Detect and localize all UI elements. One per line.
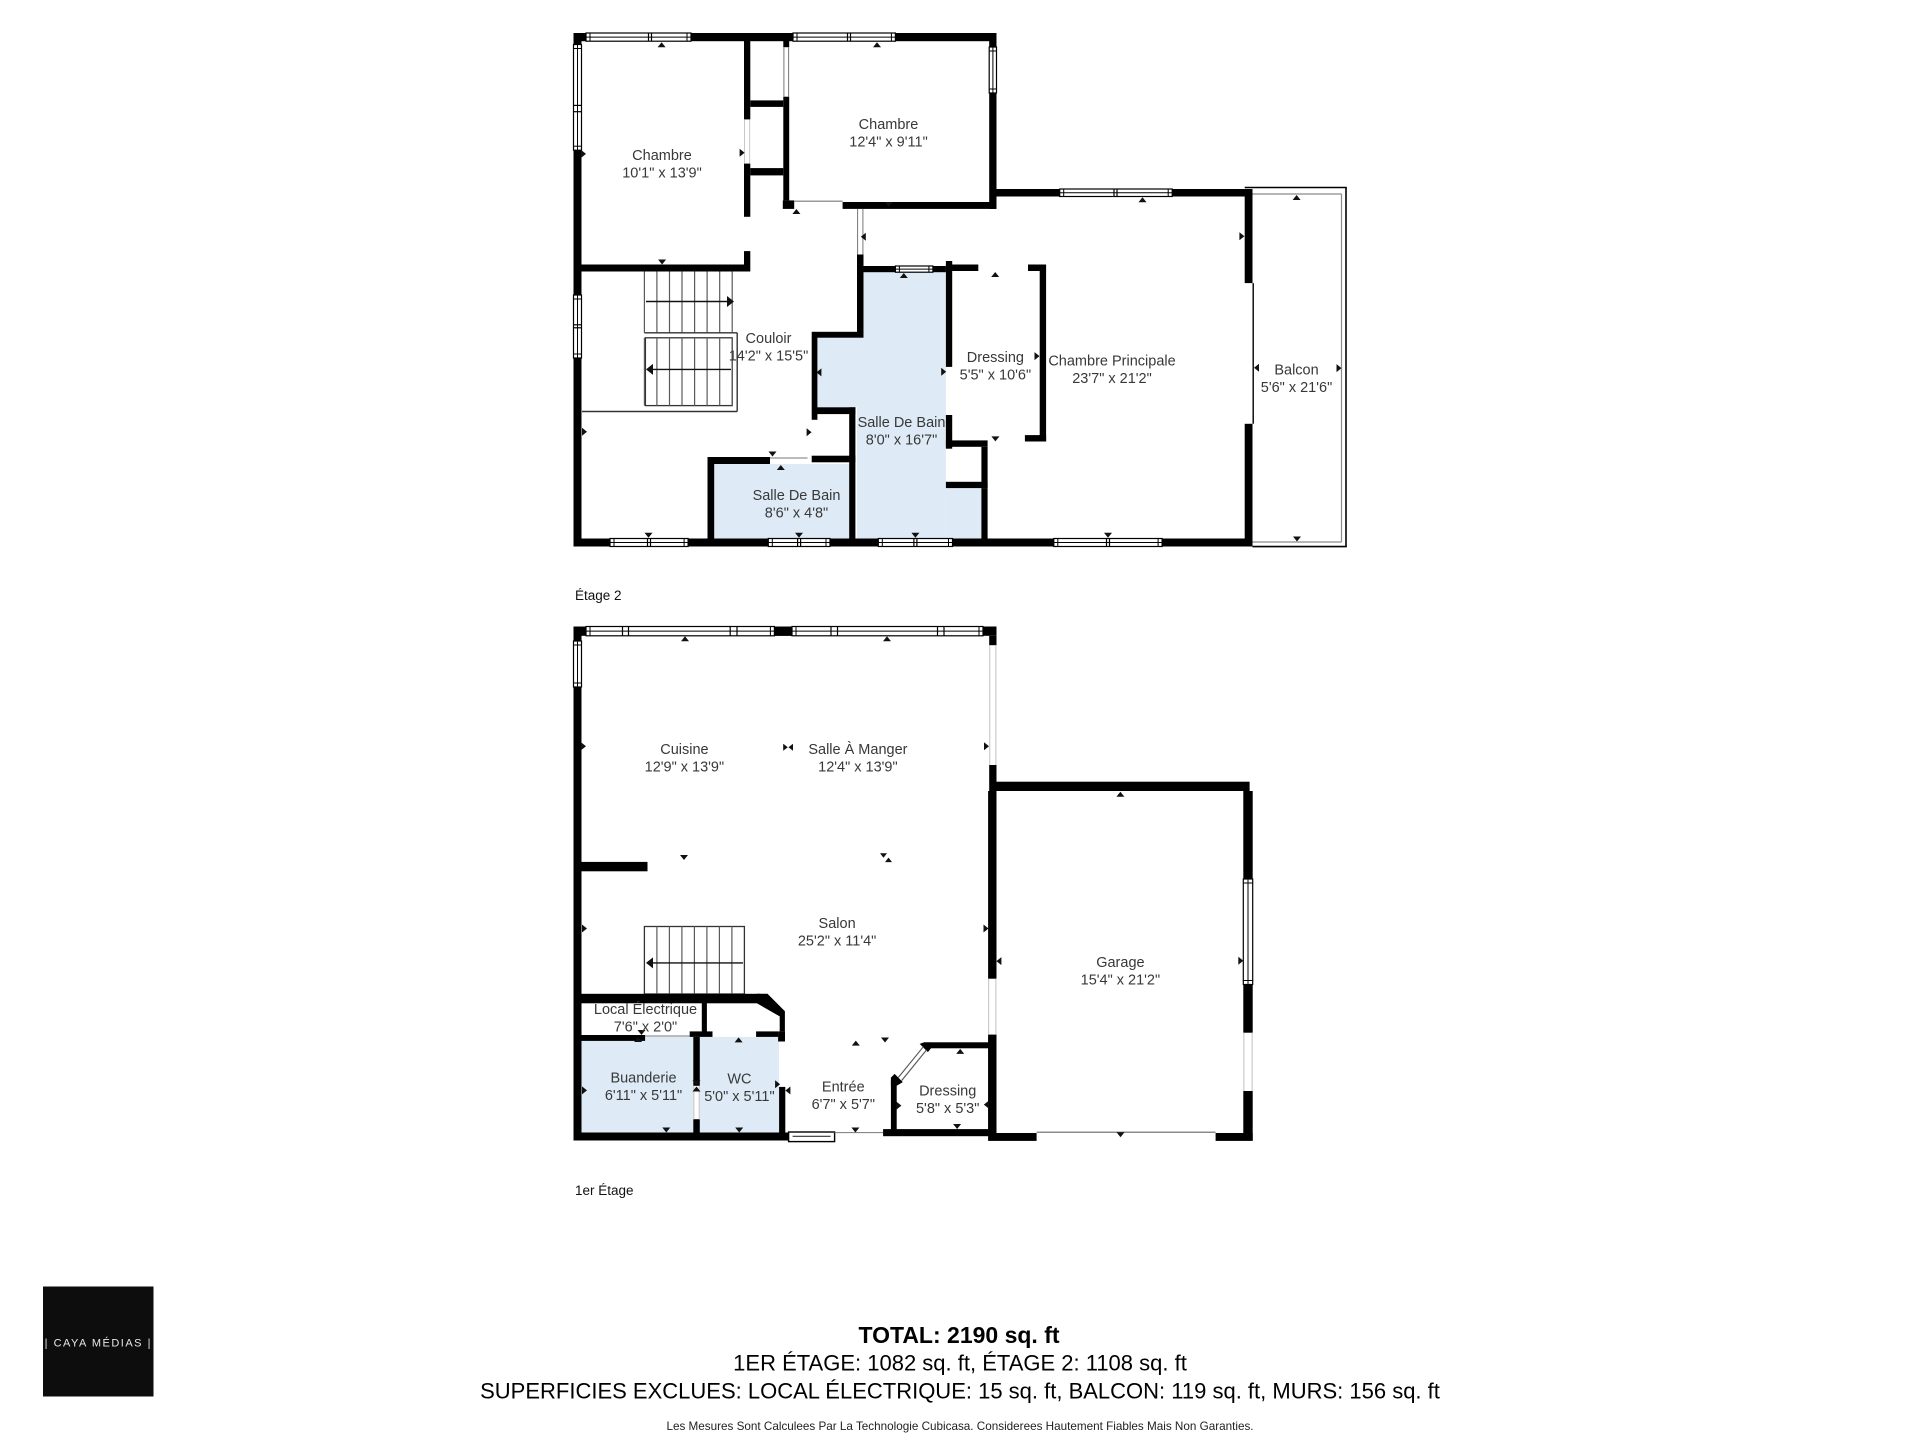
svg-text:5'5" x 10'6": 5'5" x 10'6" — [960, 368, 1031, 384]
svg-text:SUPERFICIES EXCLUES: LOCAL ÉLE: SUPERFICIES EXCLUES: LOCAL ÉLECTRIQUE: 1… — [480, 1379, 1440, 1404]
svg-text:5'0" x 5'11": 5'0" x 5'11" — [704, 1089, 774, 1105]
svg-text:Chambre: Chambre — [859, 117, 919, 133]
svg-text:Salle À Manger: Salle À Manger — [808, 741, 907, 758]
svg-text:| CAYA MÉDIAS |: | CAYA MÉDIAS | — [45, 1337, 152, 1350]
svg-text:Couloir: Couloir — [746, 331, 792, 347]
svg-text:Étage 2: Étage 2 — [575, 588, 622, 603]
svg-text:Salle De Bain: Salle De Bain — [858, 415, 946, 431]
svg-text:5'8" x 5'3": 5'8" x 5'3" — [916, 1101, 979, 1117]
svg-text:8'0" x 16'7": 8'0" x 16'7" — [866, 433, 937, 449]
svg-text:12'4" x 9'11": 12'4" x 9'11" — [849, 135, 927, 151]
svg-text:Salle De Bain: Salle De Bain — [753, 488, 841, 504]
svg-text:Les Mesures Sont Calculees Par: Les Mesures Sont Calculees Par La Techno… — [666, 1420, 1253, 1433]
svg-text:12'4" x 13'9": 12'4" x 13'9" — [818, 760, 898, 776]
svg-text:1er Étage: 1er Étage — [575, 1183, 634, 1198]
svg-text:6'7" x 5'7": 6'7" x 5'7" — [812, 1097, 875, 1113]
svg-text:TOTAL: 2190 sq. ft: TOTAL: 2190 sq. ft — [858, 1322, 1059, 1348]
svg-text:Chambre Principale: Chambre Principale — [1048, 354, 1175, 370]
svg-text:8'6" x 4'8": 8'6" x 4'8" — [765, 506, 828, 522]
svg-text:Buanderie: Buanderie — [610, 1071, 676, 1087]
svg-text:10'1" x 13'9": 10'1" x 13'9" — [622, 166, 702, 182]
svg-text:WC: WC — [727, 1072, 751, 1088]
svg-text:Balcon: Balcon — [1274, 363, 1318, 379]
svg-text:5'6" x 21'6": 5'6" x 21'6" — [1261, 380, 1332, 396]
svg-text:15'4" x 21'2": 15'4" x 21'2" — [1081, 973, 1161, 989]
svg-text:25'2" x 11'4": 25'2" x 11'4" — [798, 934, 876, 950]
svg-text:Garage: Garage — [1096, 955, 1144, 971]
svg-text:Entrée: Entrée — [822, 1080, 865, 1096]
svg-text:12'9" x 13'9": 12'9" x 13'9" — [645, 760, 725, 776]
svg-text:Local Électrique: Local Électrique — [594, 1001, 697, 1018]
svg-text:23'7" x 21'2": 23'7" x 21'2" — [1072, 371, 1152, 387]
svg-text:Dressing: Dressing — [919, 1084, 976, 1100]
svg-text:1ER ÉTAGE: 1082 sq. ft, ÉTAGE: 1ER ÉTAGE: 1082 sq. ft, ÉTAGE 2: 1108 sq… — [733, 1351, 1187, 1376]
svg-text:6'11" x 5'11": 6'11" x 5'11" — [605, 1088, 682, 1104]
svg-text:7'6" x 2'0": 7'6" x 2'0" — [614, 1020, 677, 1036]
svg-text:Cuisine: Cuisine — [660, 742, 708, 758]
svg-text:Chambre: Chambre — [632, 148, 692, 164]
svg-text:Dressing: Dressing — [967, 350, 1024, 366]
svg-text:14'2" x 15'5": 14'2" x 15'5" — [729, 349, 809, 365]
svg-text:Salon: Salon — [819, 916, 856, 932]
